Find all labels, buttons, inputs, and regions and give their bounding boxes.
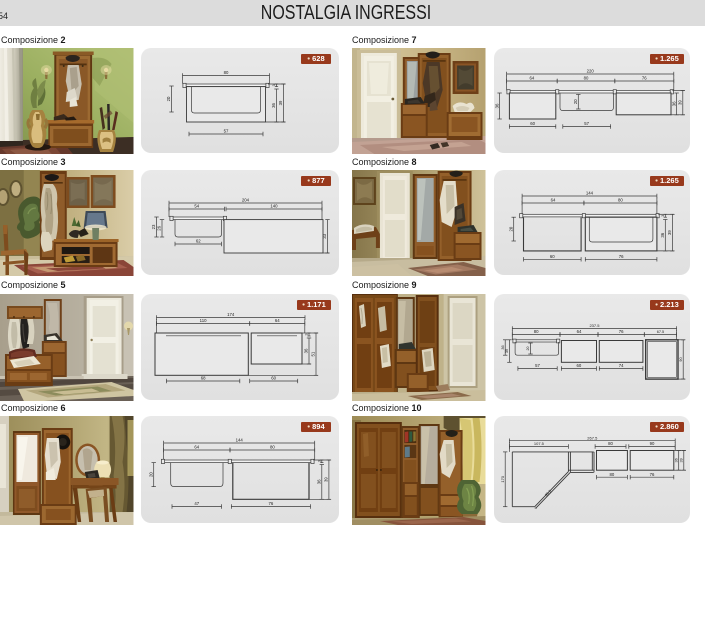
svg-text:3: 3: [305, 334, 309, 336]
svg-text:80: 80: [610, 472, 615, 477]
svg-text:20: 20: [166, 96, 171, 101]
svg-text:39: 39: [505, 349, 509, 353]
svg-text:80: 80: [534, 329, 539, 334]
svg-text:80: 80: [608, 441, 613, 446]
svg-text:33: 33: [322, 233, 327, 238]
svg-text:20: 20: [508, 226, 513, 231]
svg-text:60: 60: [550, 254, 555, 259]
svg-text:204: 204: [242, 198, 250, 203]
svg-text:76: 76: [269, 501, 274, 506]
svg-text:20: 20: [526, 347, 530, 351]
svg-text:95.5: 95.5: [544, 489, 552, 497]
svg-text:64: 64: [551, 198, 556, 203]
svg-text:76: 76: [619, 329, 624, 334]
svg-text:3: 3: [272, 84, 276, 86]
svg-text:170: 170: [500, 475, 505, 482]
svg-text:26: 26: [157, 225, 162, 230]
svg-text:23: 23: [151, 224, 156, 229]
svg-text:90: 90: [679, 357, 683, 361]
svg-text:64: 64: [275, 318, 280, 323]
svg-text:39: 39: [680, 458, 684, 462]
svg-text:54: 54: [194, 204, 199, 209]
svg-text:80: 80: [584, 76, 589, 81]
svg-text:64: 64: [577, 329, 582, 334]
svg-text:107.5: 107.5: [534, 441, 545, 446]
svg-text:144: 144: [236, 438, 244, 443]
svg-text:80: 80: [224, 70, 229, 75]
svg-text:3: 3: [318, 460, 322, 462]
svg-text:62: 62: [196, 239, 201, 244]
svg-text:64: 64: [530, 76, 535, 81]
svg-text:76: 76: [642, 76, 647, 81]
svg-text:36: 36: [494, 103, 499, 108]
svg-text:64: 64: [194, 445, 199, 450]
svg-text:110: 110: [200, 318, 207, 323]
svg-text:267.5: 267.5: [587, 435, 598, 440]
svg-text:76: 76: [619, 254, 624, 259]
svg-text:90: 90: [650, 441, 655, 446]
svg-text:140: 140: [270, 204, 278, 209]
svg-text:20: 20: [148, 472, 153, 477]
svg-text:237.5: 237.5: [589, 323, 600, 328]
svg-text:174: 174: [227, 312, 235, 317]
svg-text:57: 57: [584, 121, 589, 126]
svg-text:39: 39: [678, 100, 683, 105]
svg-text:67.5: 67.5: [657, 330, 664, 334]
svg-text:3: 3: [661, 215, 665, 217]
svg-text:57: 57: [224, 129, 229, 134]
svg-text:220: 220: [587, 69, 595, 74]
svg-text:80: 80: [270, 445, 275, 450]
svg-text:20: 20: [573, 99, 578, 104]
svg-text:36: 36: [660, 232, 665, 237]
svg-text:57: 57: [535, 363, 540, 368]
svg-text:68: 68: [201, 376, 206, 381]
svg-text:60: 60: [271, 376, 276, 381]
svg-text:36: 36: [674, 458, 678, 462]
svg-text:80: 80: [618, 198, 623, 203]
svg-text:36: 36: [271, 103, 276, 108]
svg-text:60: 60: [530, 121, 535, 126]
svg-text:60: 60: [577, 363, 582, 368]
svg-text:39: 39: [667, 230, 672, 235]
svg-text:39: 39: [278, 100, 283, 105]
svg-text:36: 36: [671, 101, 676, 106]
svg-text:36: 36: [304, 348, 309, 353]
svg-text:51: 51: [311, 351, 316, 356]
svg-text:76: 76: [650, 472, 655, 477]
svg-text:47: 47: [194, 501, 199, 506]
svg-text:74: 74: [619, 363, 624, 368]
svg-text:144: 144: [586, 191, 594, 196]
svg-text:39: 39: [324, 477, 329, 482]
svg-text:36: 36: [317, 479, 322, 484]
